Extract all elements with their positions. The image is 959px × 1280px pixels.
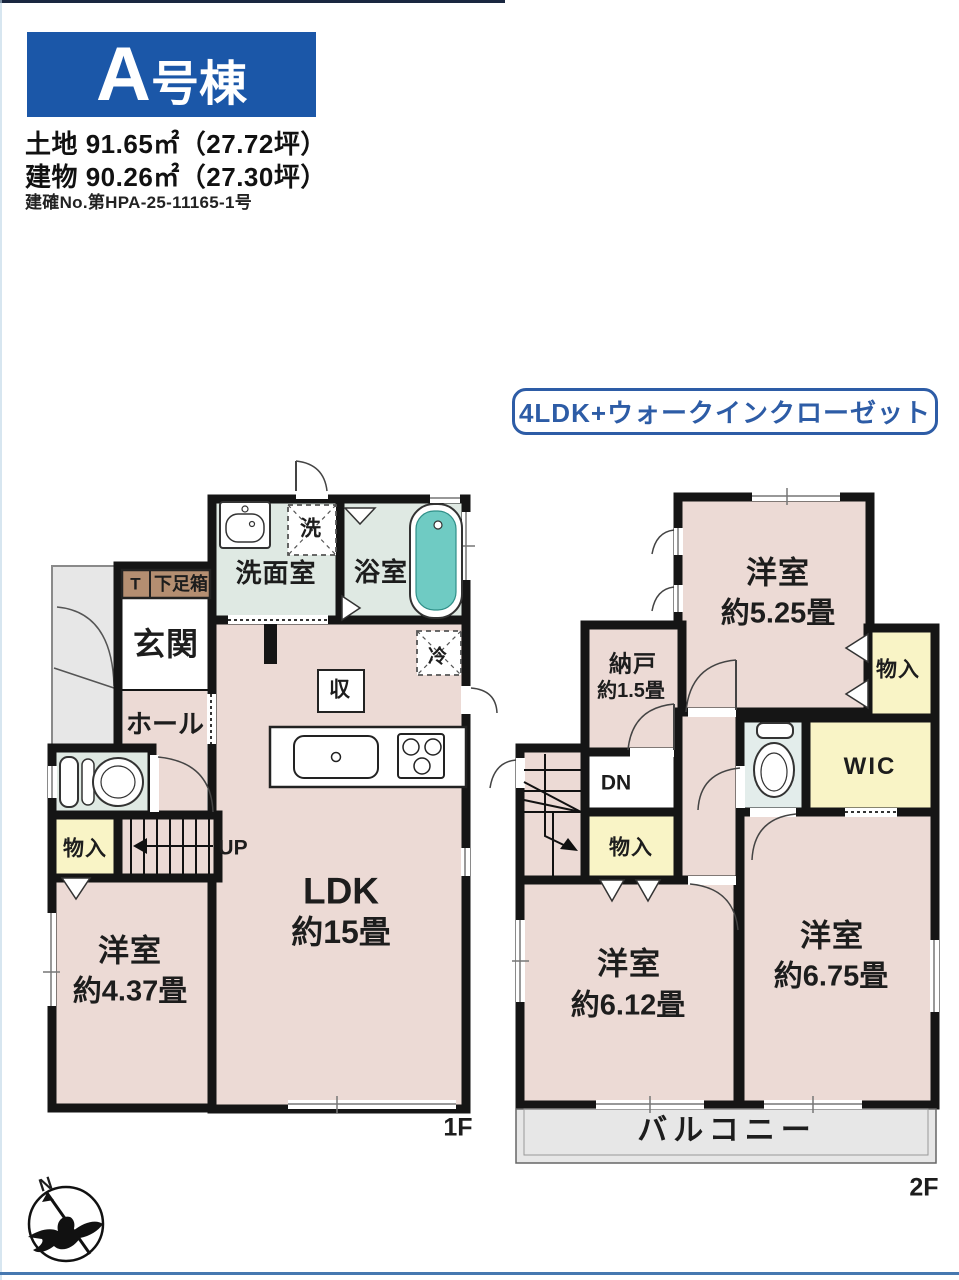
compass-icon [28,1187,103,1261]
label-closet-2f-top: 物入 [876,660,920,681]
label-r675-name: 洋室 [800,921,864,952]
sink-icon [220,502,270,548]
label-floor-2f: 2F [909,1176,938,1201]
label-closet-2f-mid: 物入 [609,838,653,859]
room-675 [740,812,935,1105]
label-shoe-box: 下足箱 [154,575,208,593]
label-dn: DN [601,773,631,794]
label-room437-name: 洋室 [98,936,162,967]
label-r612-size: 約6.12畳 [571,992,685,1021]
label-shoe-t: T [130,576,141,593]
floorplan-sheet: A 号棟 土地 91.65㎡（27.72坪） 建物 90.26㎡（27.30坪）… [0,0,959,1280]
label-ldk-size: 約15畳 [291,916,391,948]
porch [52,566,116,746]
floor2-plan [490,488,939,1163]
compass-bird [28,1217,103,1252]
label-balcony: バルコニー [637,1116,816,1146]
label-laundry: 洗 [300,519,322,540]
label-room437-size: 約4.37畳 [73,978,187,1007]
label-r525-name: 洋室 [746,558,810,589]
label-fridge: 冷 [428,648,448,667]
label-r675-size: 約6.75畳 [774,963,888,992]
label-nando-name: 納戸 [609,653,657,676]
label-ldk-name: LDK [303,873,379,910]
bathtub-icon [410,504,462,618]
label-nando-size: 約1.5畳 [597,681,665,701]
label-wic: WIC [844,755,897,779]
label-storage: 収 [329,680,351,701]
label-floor-1f: 1F [443,1116,472,1141]
label-entrance: 玄関 [133,628,199,660]
label-r612-name: 洋室 [597,949,661,980]
label-bath: 浴室 [354,559,408,585]
sliding-door-wic [845,808,897,817]
hall-2f [678,712,745,880]
label-up: UP [218,838,247,859]
label-r525-size: 約5.25畳 [721,600,835,629]
toilet-icon-1f [60,757,143,807]
toilet-icon-2f [754,723,794,797]
kitchen-counter [270,727,466,787]
label-closet-1f: 物入 [63,839,107,860]
label-hall: ホール [126,711,204,737]
label-washroom: 洗面室 [235,560,316,586]
